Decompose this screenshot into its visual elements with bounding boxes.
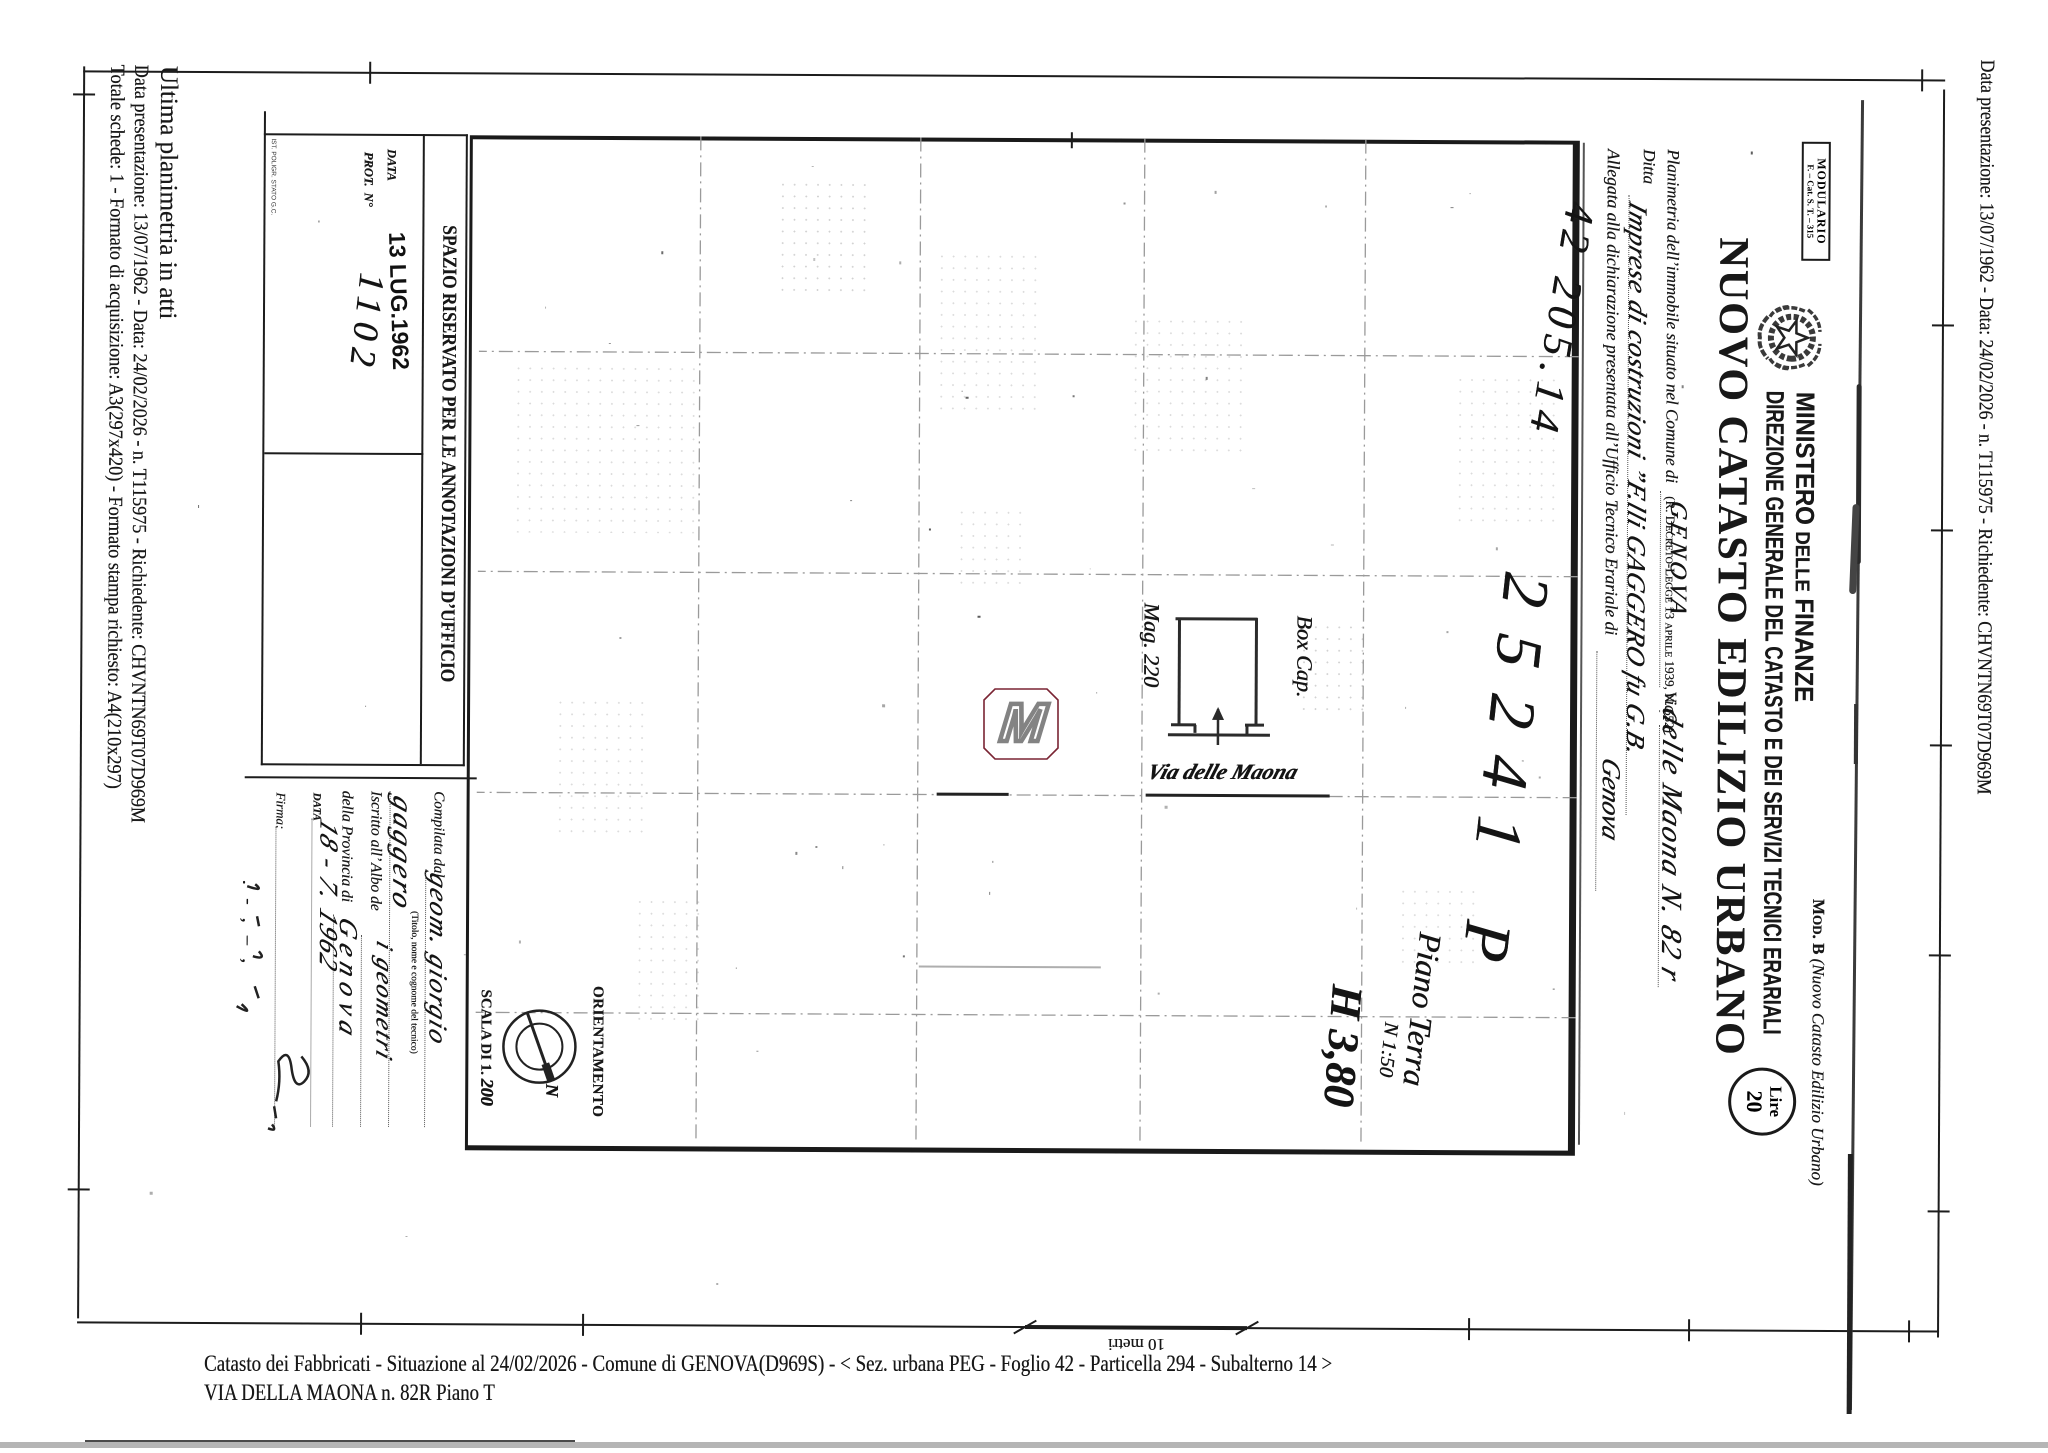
svg-text:M: M <box>998 693 1051 753</box>
